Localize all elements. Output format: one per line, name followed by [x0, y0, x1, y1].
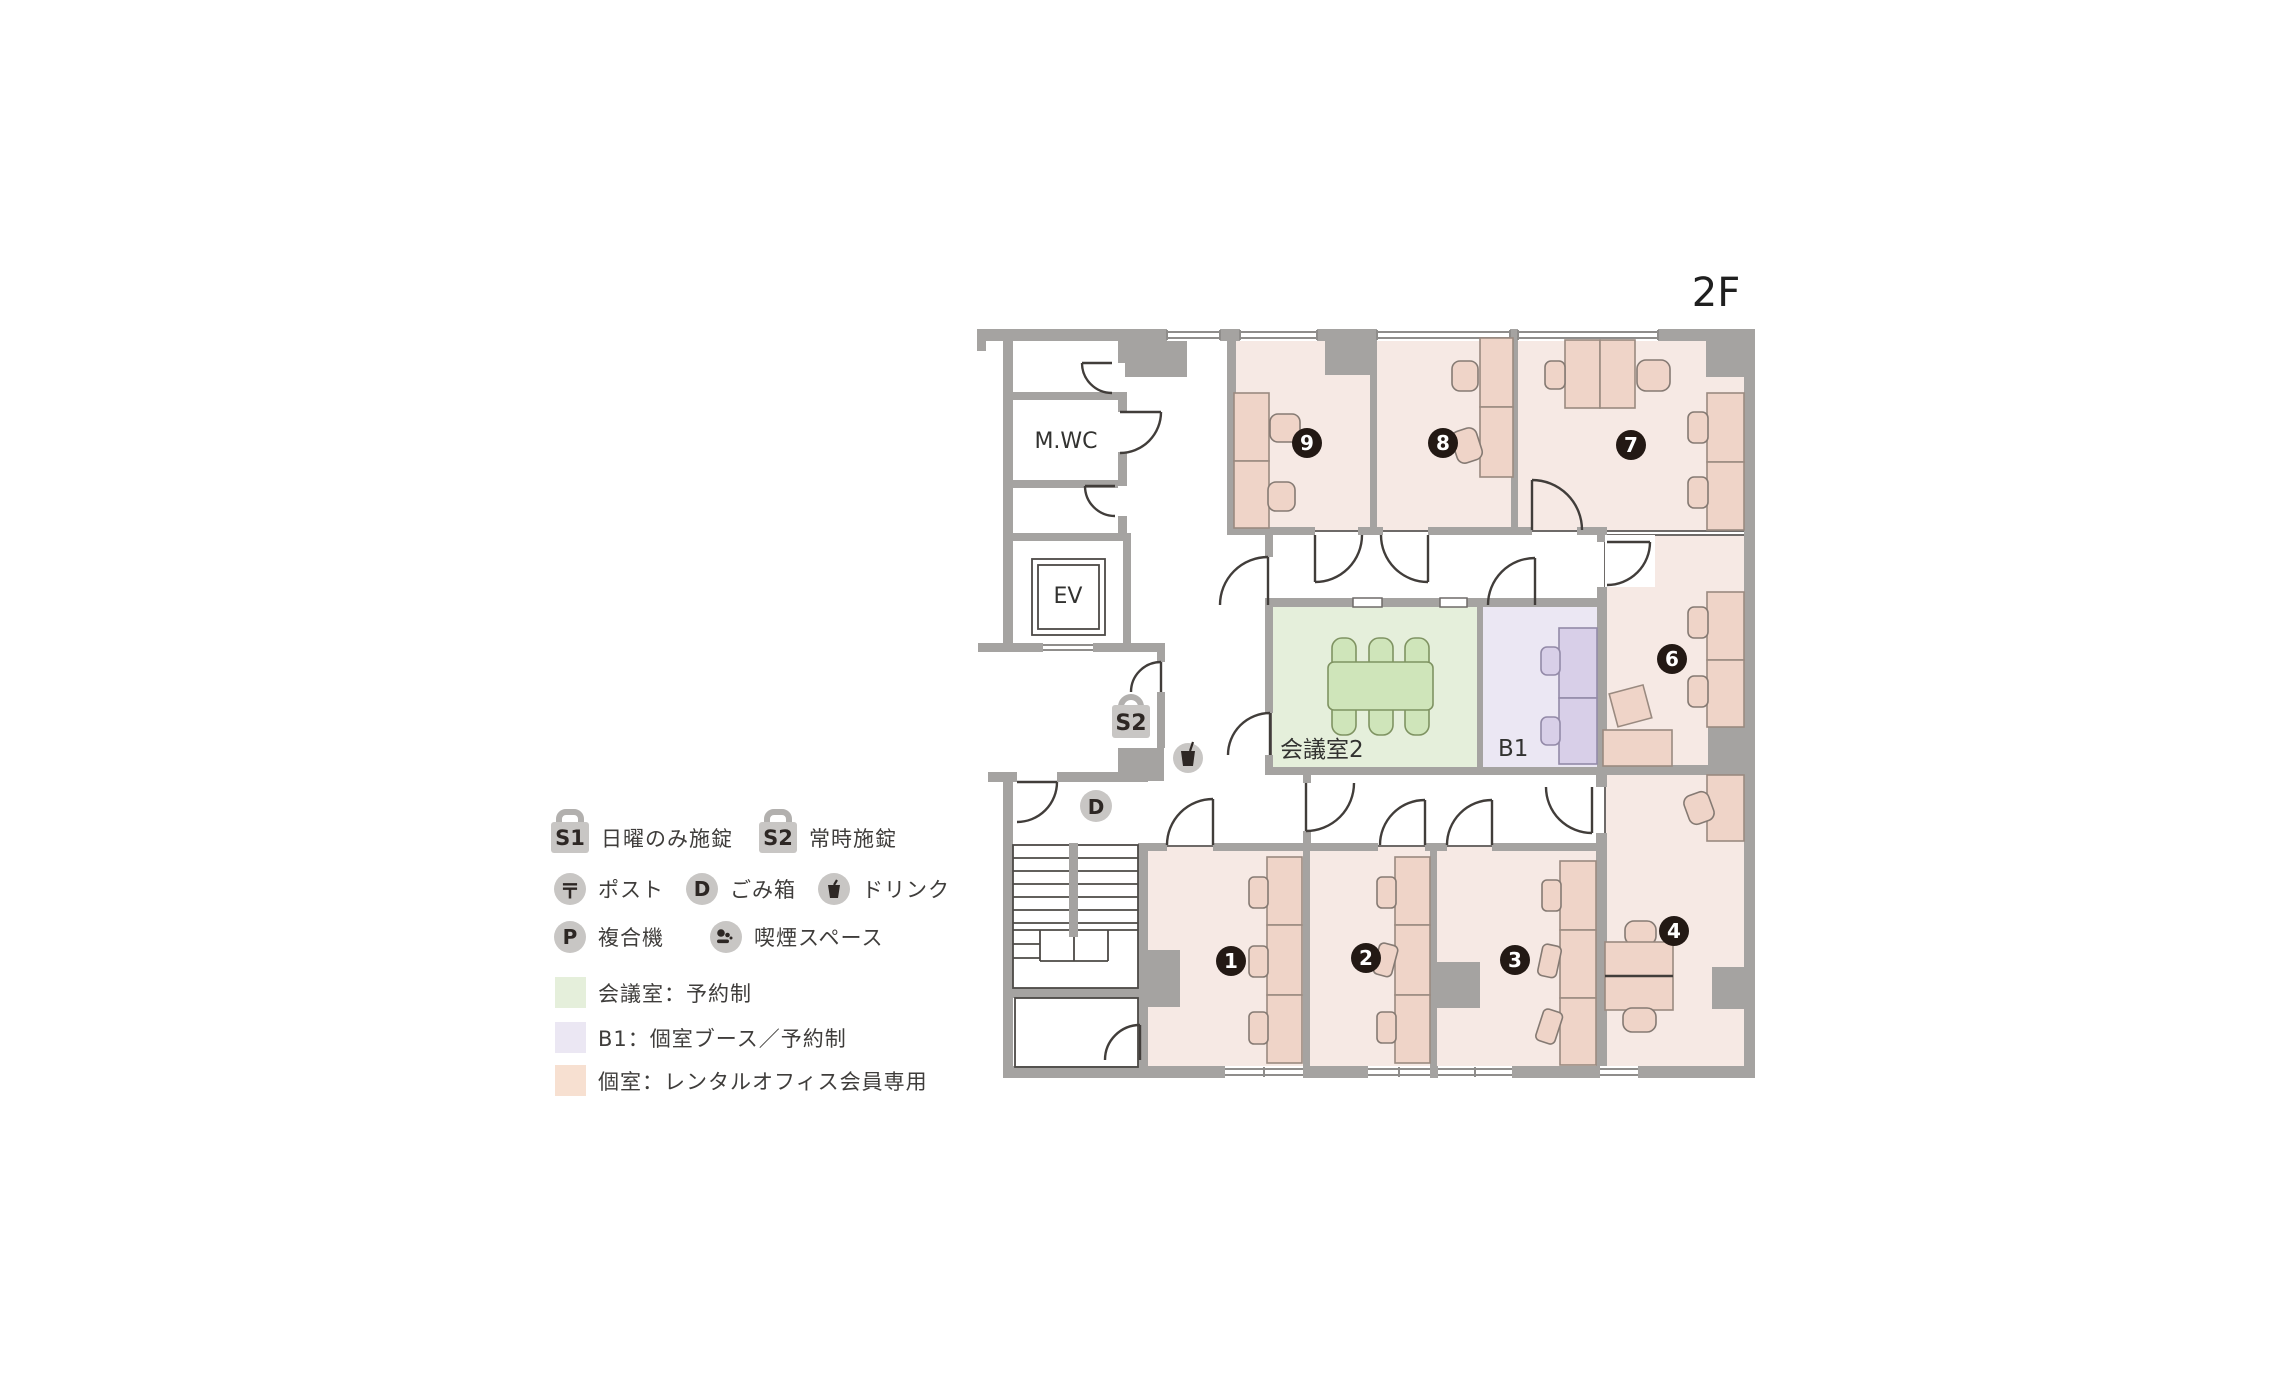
- trash-icon: D: [1080, 790, 1112, 822]
- room-3-badge: 3: [1500, 945, 1530, 975]
- door-hall: [1306, 783, 1354, 831]
- legend-private-label: 個室：レンタルオフィス会員専用: [598, 1066, 928, 1096]
- pillar: [1125, 337, 1187, 377]
- legend-printer: P 複合機: [554, 921, 664, 953]
- legend-lock-always: S2 常時施錠: [759, 822, 897, 853]
- legend-booth: B1：個室ブース／予約制: [555, 1022, 847, 1053]
- window: [1167, 329, 1220, 341]
- legend-trash-label: ごみ箱: [730, 874, 796, 904]
- lock-s2-icon: S2: [1112, 697, 1150, 738]
- meeting-color-swatch: [555, 977, 586, 1008]
- pillar: [1325, 337, 1375, 375]
- pillar: [1706, 340, 1746, 377]
- door-room1: [1167, 799, 1213, 845]
- legend-lock-sunday: S1 日曜のみ施錠: [551, 822, 733, 853]
- window: [1438, 1066, 1512, 1078]
- room-9-badge: 9: [1292, 428, 1322, 458]
- trash-icon: D: [686, 873, 718, 905]
- legend-meeting: 会議室：予約制: [555, 977, 752, 1008]
- post-icon: 〒: [554, 873, 586, 905]
- mwc-label: M.WC: [1034, 429, 1097, 454]
- door-stair-entrance: [1017, 782, 1057, 822]
- window: [1225, 1066, 1303, 1078]
- pillar: [1708, 727, 1748, 769]
- floor-plan: EV M.WC: [0, 0, 2274, 1385]
- room-2-furniture: [1372, 857, 1430, 1063]
- legend-lock-sunday-label: 日曜のみ施錠: [601, 823, 733, 853]
- door-room3: [1447, 800, 1492, 845]
- svg-text:4: 4: [1667, 919, 1681, 943]
- door-corridor-junction: [1220, 557, 1268, 605]
- meeting-table: [1328, 662, 1433, 710]
- room-8-badge: 8: [1428, 428, 1458, 458]
- legend-trash: D ごみ箱: [686, 873, 796, 905]
- drink-icon: [1173, 742, 1203, 773]
- smoking-icon: [710, 921, 742, 953]
- legend-row-machines: P 複合機 喫煙スペース: [554, 921, 883, 953]
- legend-booth-label: B1：個室ブース／予約制: [598, 1023, 847, 1053]
- pillar: [1143, 950, 1180, 1007]
- svg-text:S2: S2: [1115, 711, 1146, 736]
- door-room8: [1381, 535, 1428, 582]
- window: [1043, 643, 1093, 652]
- door-room9: [1315, 535, 1362, 582]
- door-booth-b1: [1488, 558, 1535, 605]
- svg-text:2: 2: [1359, 946, 1373, 970]
- legend-printer-label: 複合機: [598, 922, 664, 952]
- door-vestibule: [1105, 1025, 1140, 1060]
- drink-icon: [818, 873, 850, 905]
- door-mwc: [1120, 412, 1161, 453]
- ev-label: EV: [1054, 584, 1083, 609]
- legend-row-services: 〒 ポスト D ごみ箱 ドリンク: [554, 873, 950, 905]
- room-1-badge: 1: [1216, 946, 1246, 976]
- legend-post: 〒 ポスト: [554, 873, 664, 905]
- private-color-swatch: [555, 1065, 586, 1096]
- floor-label: 2F: [1692, 270, 1740, 316]
- door-room2: [1380, 800, 1425, 845]
- elevator: EV: [1032, 559, 1105, 635]
- booth-color-swatch: [555, 1022, 586, 1053]
- svg-text:7: 7: [1624, 433, 1638, 457]
- window: [1240, 329, 1317, 341]
- door-room6: [1605, 535, 1655, 587]
- door-wc-top: [1082, 363, 1112, 393]
- lock-s2-icon: S2: [759, 822, 797, 853]
- legend-meeting-label: 会議室：予約制: [598, 978, 752, 1008]
- legend-row-locks: S1 日曜のみ施錠 S2 常時施錠: [551, 822, 897, 853]
- room-6-badge: 6: [1657, 644, 1687, 674]
- svg-text:1: 1: [1224, 949, 1238, 973]
- lock-s1-icon: S1: [551, 822, 589, 853]
- stairs: [1013, 843, 1138, 988]
- legend-smoking: 喫煙スペース: [710, 921, 883, 953]
- room-3-furniture: [1535, 861, 1596, 1065]
- door-wc-lower: [1085, 486, 1115, 516]
- window: [1368, 1066, 1430, 1078]
- interior-window: [1353, 598, 1382, 607]
- svg-text:9: 9: [1300, 431, 1314, 455]
- booth-b1-label: B1: [1498, 736, 1528, 762]
- printer-icon: P: [554, 921, 586, 953]
- interior-window: [1440, 598, 1467, 607]
- pillar: [1435, 962, 1480, 1008]
- room-4-badge: 4: [1659, 916, 1689, 946]
- legend-lock-always-label: 常時施錠: [809, 823, 897, 853]
- svg-text:3: 3: [1508, 948, 1522, 972]
- legend-drink: ドリンク: [818, 873, 950, 905]
- svg-text:6: 6: [1665, 647, 1679, 671]
- meeting-room-label: 会議室2: [1280, 737, 1364, 763]
- legend-drink-label: ドリンク: [862, 874, 950, 904]
- pillar: [1712, 967, 1752, 1009]
- door-room4: [1546, 787, 1592, 833]
- room-7-badge: 7: [1616, 430, 1646, 460]
- door-meeting: [1228, 713, 1270, 755]
- floor-plan-page: EV M.WC: [0, 0, 2274, 1385]
- door-s2: [1131, 662, 1161, 692]
- meeting-room-furniture: [1328, 638, 1433, 735]
- legend-private: 個室：レンタルオフィス会員専用: [555, 1065, 928, 1096]
- legend-post-label: ポスト: [598, 874, 664, 904]
- room-2-badge: 2: [1351, 943, 1381, 973]
- window: [1600, 1066, 1638, 1078]
- svg-text:D: D: [1088, 795, 1105, 819]
- svg-text:8: 8: [1436, 431, 1450, 455]
- legend-smoking-label: 喫煙スペース: [754, 922, 883, 952]
- room-1-furniture: [1249, 857, 1302, 1063]
